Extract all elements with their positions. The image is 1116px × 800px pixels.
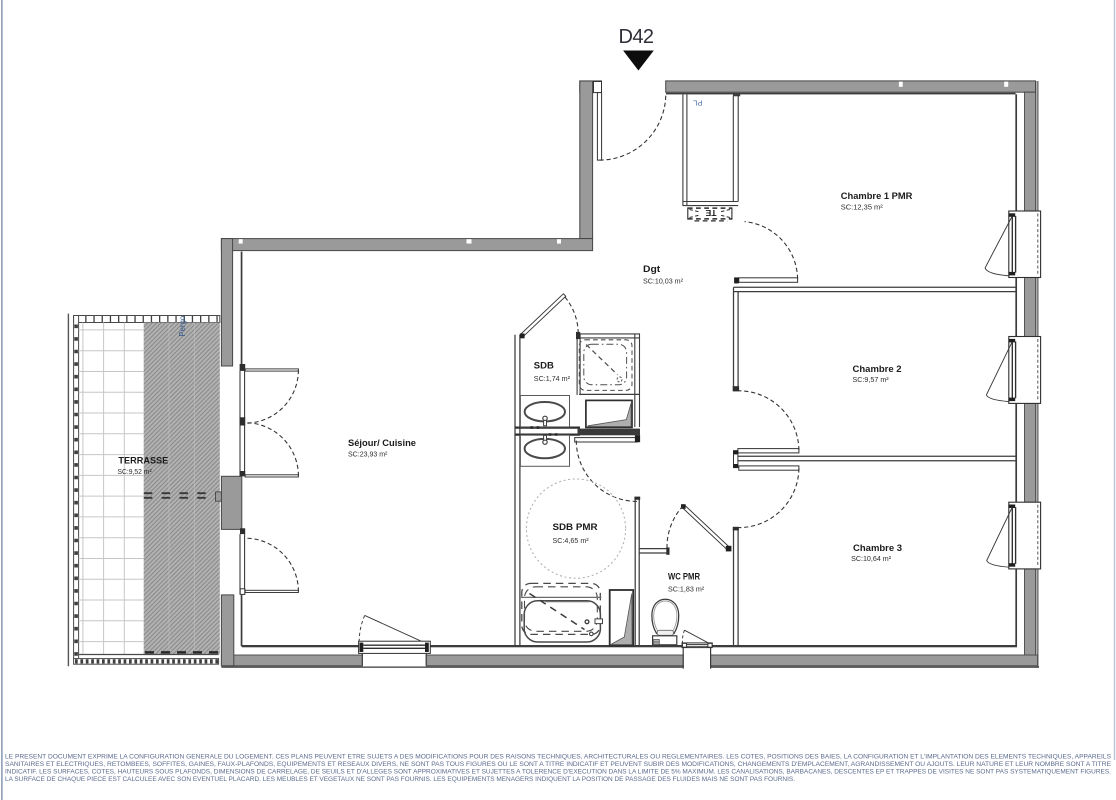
svg-text:SC:23,93 m²: SC:23,93 m² bbox=[348, 449, 388, 458]
svg-text:Dgt: Dgt bbox=[643, 263, 660, 274]
svg-text:SDB: SDB bbox=[534, 360, 554, 371]
svg-text:LA SURFACE DE CHAQUE PIECE EST: LA SURFACE DE CHAQUE PIECE EST CALCULEE … bbox=[5, 776, 795, 783]
svg-text:SC:10,64 m²: SC:10,64 m² bbox=[851, 554, 892, 563]
svg-text:SC:12,35 m²: SC:12,35 m² bbox=[841, 203, 884, 212]
svg-text:INDICATIF. LES SURFACES, COTES: INDICATIF. LES SURFACES, COTES, HAUTEURS… bbox=[5, 769, 1111, 776]
svg-text:LE PRESENT DOCUMENT EXPRIME LA: LE PRESENT DOCUMENT EXPRIME LA CONFIGURA… bbox=[5, 754, 1112, 761]
svg-text:SDB PMR: SDB PMR bbox=[553, 521, 598, 532]
svg-text:TERRASSE: TERRASSE bbox=[118, 454, 168, 465]
svg-text:Chambre 2: Chambre 2 bbox=[853, 363, 902, 374]
svg-text:TE: TE bbox=[705, 208, 716, 218]
svg-text:Chambre 1 PMR: Chambre 1 PMR bbox=[841, 190, 913, 201]
svg-text:Pergo: Pergo bbox=[178, 315, 187, 336]
svg-text:SC:1,74 m²: SC:1,74 m² bbox=[534, 374, 571, 383]
svg-text:SANITAIRES ET ELECTRIQUES, RET: SANITAIRES ET ELECTRIQUES, RETOMBEES, SO… bbox=[5, 761, 1112, 768]
svg-text:Séjour/ Cuisine: Séjour/ Cuisine bbox=[348, 437, 416, 448]
svg-text:WC PMR: WC PMR bbox=[668, 570, 700, 581]
svg-text:PL: PL bbox=[693, 99, 702, 108]
svg-text:D42: D42 bbox=[619, 26, 655, 48]
svg-text:SC:4,65 m²: SC:4,65 m² bbox=[553, 536, 590, 545]
svg-text:Chambre 3: Chambre 3 bbox=[853, 542, 902, 553]
svg-text:SC:10,03 m²: SC:10,03 m² bbox=[643, 277, 684, 286]
svg-text:SC:9,57 m²: SC:9,57 m² bbox=[853, 375, 890, 384]
svg-text:SC:9,52 m²: SC:9,52 m² bbox=[118, 467, 153, 476]
svg-text:SC:1,83 m²: SC:1,83 m² bbox=[668, 585, 705, 594]
